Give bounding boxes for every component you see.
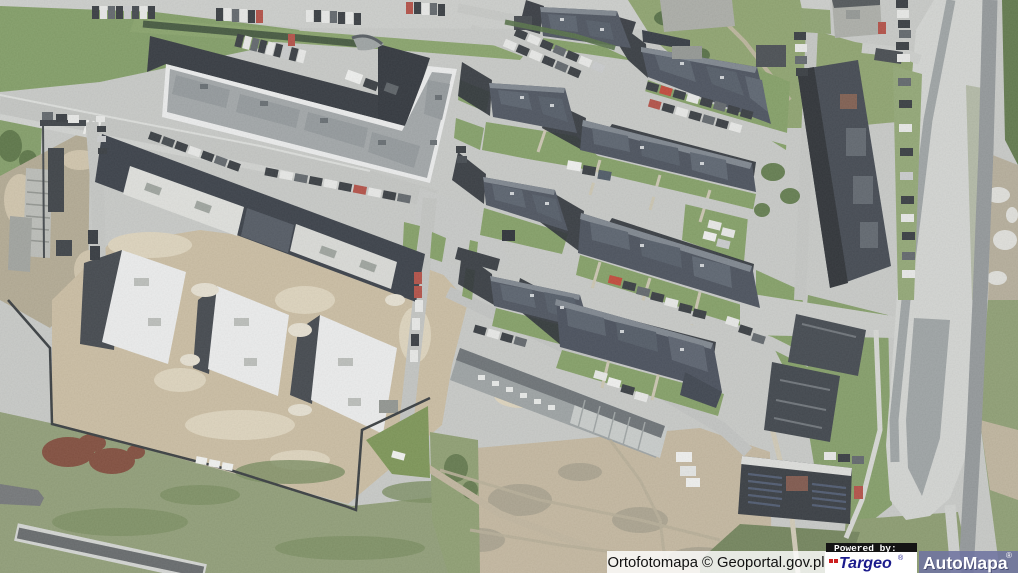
svg-text:Ortofotomapa © Geoportal.gov.p: Ortofotomapa © Geoportal.gov.pl xyxy=(607,555,824,571)
svg-text:®: ® xyxy=(1006,551,1012,560)
svg-text:AutoMapa: AutoMapa xyxy=(923,553,1008,573)
svg-text:®: ® xyxy=(898,554,904,562)
svg-text:Targeo: Targeo xyxy=(839,555,892,572)
